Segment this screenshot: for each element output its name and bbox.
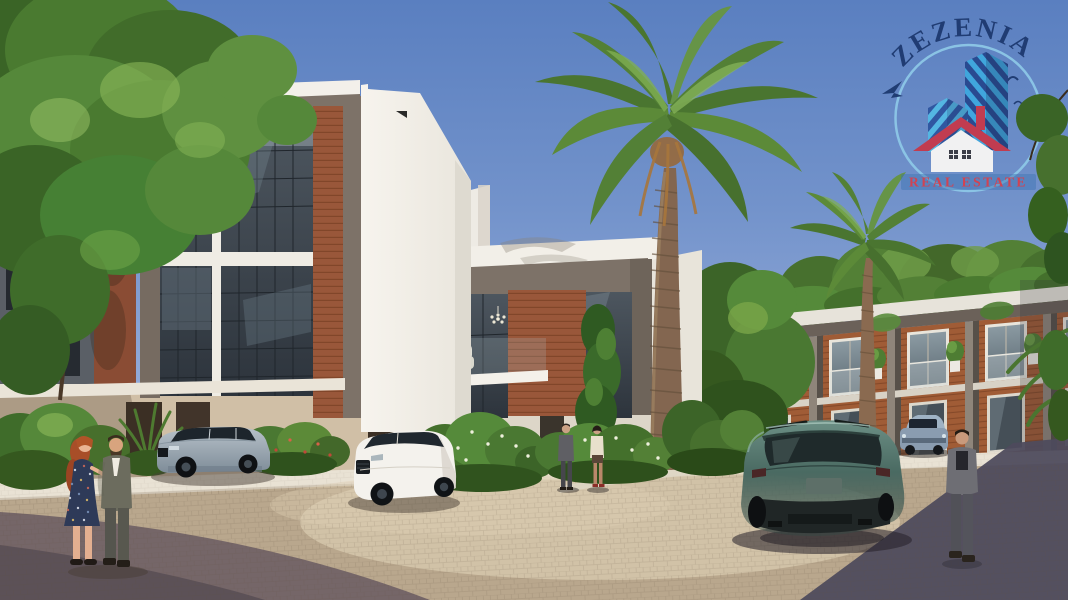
architectural-render: ZEZENIA REAL ESTATE <box>0 0 1068 600</box>
suv-white <box>348 430 460 513</box>
suv-silver-range-rover <box>151 427 275 486</box>
scene-graphic: ZEZENIA REAL ESTATE <box>0 0 1068 600</box>
suv-teal <box>732 420 912 554</box>
white-mullion-horizontal <box>160 252 313 266</box>
logo-tagline-text: REAL ESTATE <box>909 175 1028 190</box>
license-plate <box>806 478 842 494</box>
villa-left-wood-column <box>313 106 343 418</box>
